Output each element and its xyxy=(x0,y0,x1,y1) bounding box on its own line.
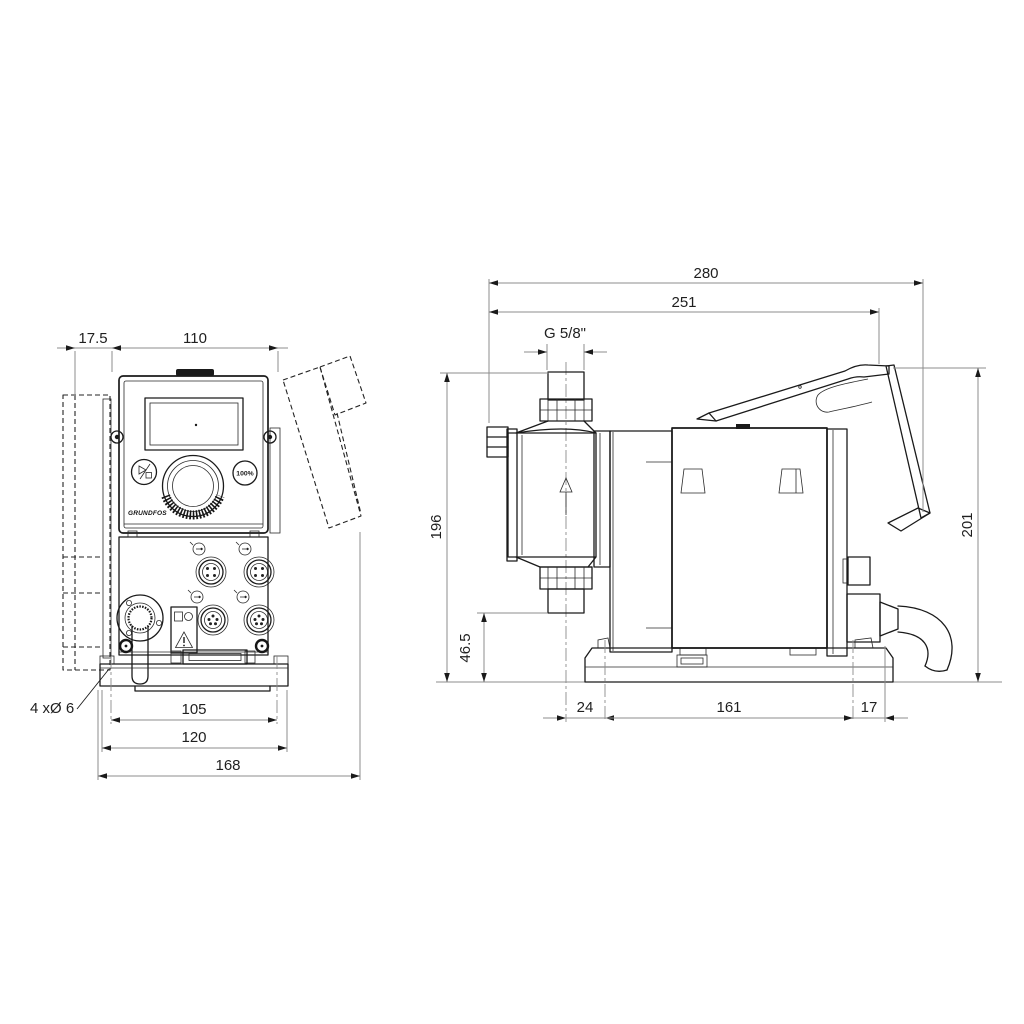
control-cover-tilted xyxy=(697,365,930,531)
dim-196-label: 196 xyxy=(428,514,445,539)
signal-icon xyxy=(234,590,249,603)
hundred-percent-button: 100% xyxy=(233,461,257,485)
top-rib xyxy=(736,424,750,429)
dim-overall-width: 168 xyxy=(98,532,360,780)
connection-panel xyxy=(117,531,274,684)
dosing-head-side xyxy=(487,427,610,567)
thread-label: G 5/8" xyxy=(544,325,586,342)
dim-overall-height: 201 xyxy=(893,368,986,682)
wheel-knurl xyxy=(166,496,221,515)
dim-120-label: 120 xyxy=(181,729,206,746)
mains-cable xyxy=(898,606,952,670)
m12-socket xyxy=(244,557,274,587)
side-view: 280 251 G 5/8" 196 xyxy=(428,265,1002,722)
rear-housing xyxy=(827,429,847,656)
signal-icon xyxy=(188,590,203,603)
dim-161-label: 161 xyxy=(716,699,741,716)
dim-housing-width: 110 xyxy=(183,330,278,372)
dim-17-label: 17 xyxy=(861,699,878,716)
front-view: 100% GRUNDFOS xyxy=(30,330,366,780)
dosing-head-hidden xyxy=(283,356,366,528)
dim-46-5-label: 46.5 xyxy=(457,633,474,662)
stop-icon xyxy=(146,473,152,479)
dim-rear-offset: 17 xyxy=(853,646,908,722)
cable-boot xyxy=(880,602,898,636)
signal-icon xyxy=(190,542,205,555)
play-icon xyxy=(139,466,146,474)
left-screw xyxy=(111,431,123,443)
dim-201-label: 201 xyxy=(959,512,976,537)
signal-icon xyxy=(236,542,251,555)
start-stop-button xyxy=(132,460,157,485)
corner-screw xyxy=(120,640,132,652)
dim-overall-depth: 280 xyxy=(489,265,923,512)
holes-note-label: 4 xØ 6 xyxy=(30,700,74,717)
discharge-valve xyxy=(516,372,596,433)
mounting-plate-front xyxy=(100,650,288,691)
head-body xyxy=(508,433,596,557)
leader-line xyxy=(77,669,109,709)
hidden-band-b xyxy=(320,356,366,415)
dim-front-overhang: 24 xyxy=(543,640,614,722)
console xyxy=(610,431,672,652)
m12-socket xyxy=(244,605,274,635)
base-plate xyxy=(100,664,288,686)
dim-280-label: 280 xyxy=(693,265,718,282)
display-cursor-dot xyxy=(195,424,197,426)
dim-251-label: 251 xyxy=(671,294,696,311)
cover-grip-recess xyxy=(816,379,872,412)
mains-connector-block xyxy=(847,594,952,671)
base-clamp-side xyxy=(677,655,707,667)
mounting-holes-note: 4 xØ 6 xyxy=(30,669,109,717)
dim-168-label: 168 xyxy=(215,757,240,774)
m12-socket xyxy=(196,557,226,587)
control-unit: 100% GRUNDFOS xyxy=(111,369,276,533)
dim-17-5-label: 17.5 xyxy=(78,330,107,347)
drawing-svg: 100% GRUNDFOS xyxy=(0,0,1024,1024)
display xyxy=(145,398,243,450)
dim-110-label: 110 xyxy=(183,330,207,347)
cover-top-band xyxy=(709,365,889,421)
keyhole-slot xyxy=(779,469,803,493)
warning-label xyxy=(171,607,197,653)
dim-105-label: 105 xyxy=(181,701,206,718)
grundfos-logo: GRUNDFOS xyxy=(128,510,167,517)
dim-base-width: 120 xyxy=(102,690,287,752)
keyhole-slot xyxy=(681,469,705,493)
cover-tip-band xyxy=(888,508,930,531)
dim-hole-spacing-front: 105 xyxy=(111,656,277,724)
dim-connection-height: 46.5 xyxy=(457,613,547,682)
m12-socket xyxy=(198,605,228,635)
motor-housing xyxy=(672,424,827,667)
dim-connection-thread: G 5/8" xyxy=(524,325,607,370)
deaeration-knob xyxy=(487,427,508,457)
corner-screw xyxy=(256,640,268,652)
top-tab xyxy=(176,369,214,376)
click-wheel xyxy=(163,456,224,517)
dim-24-label: 24 xyxy=(577,699,594,716)
right-side-hatch xyxy=(270,428,280,533)
hundred-percent-label: 100% xyxy=(236,471,253,478)
dimensional-drawing: 100% GRUNDFOS xyxy=(0,0,1024,1024)
dim-bracket-offset: 17.5 xyxy=(57,330,288,396)
hidden-band-a xyxy=(283,367,361,528)
